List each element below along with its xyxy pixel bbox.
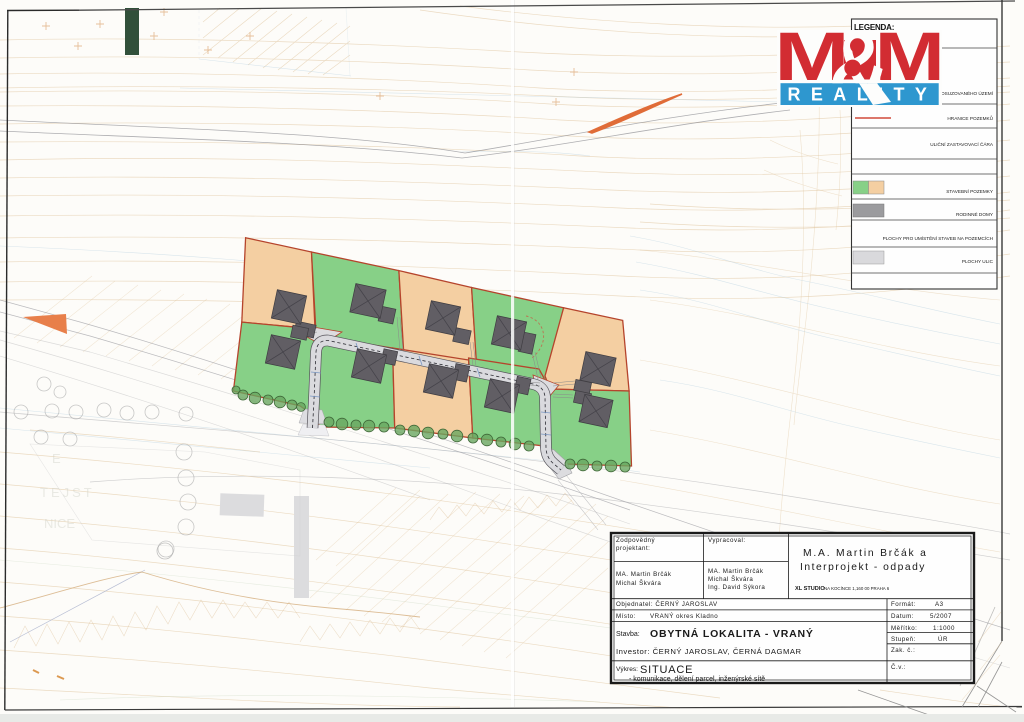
svg-text:ÚR: ÚR <box>938 636 948 643</box>
svg-text:1:1000: 1:1000 <box>933 625 955 632</box>
svg-text:projektant:: projektant: <box>616 545 650 552</box>
svg-text:Místo:: Místo: <box>616 613 636 620</box>
svg-text:5/2007: 5/2007 <box>930 613 952 620</box>
svg-text:ULIČNÍ ZASTAVOVACÍ ČÁRA: ULIČNÍ ZASTAVOVACÍ ČÁRA <box>930 141 994 147</box>
svg-text:A3: A3 <box>935 601 944 608</box>
svg-text:Měřítko:: Měřítko: <box>891 625 917 632</box>
svg-text:Zak. č.:: Zak. č.: <box>891 647 915 654</box>
svg-text:Stupeň:: Stupeň: <box>891 636 916 643</box>
svg-text:NA KOCÍNCE 1,160 00 PRAHA 6: NA KOCÍNCE 1,160 00 PRAHA 6 <box>824 586 890 591</box>
svg-text:E: E <box>52 451 61 466</box>
svg-text:Č.v.:: Č.v.: <box>891 664 906 671</box>
svg-text:MA. Martin Brčák: MA. Martin Brčák <box>616 571 672 578</box>
svg-text:Michal Škvára: Michal Škvára <box>616 580 661 587</box>
svg-text:Objednatel: ČERNÝ JAROSLAV: Objednatel: ČERNÝ JAROSLAV <box>616 601 718 608</box>
svg-text:MA. Martin Brčák: MA. Martin Brčák <box>708 568 764 575</box>
svg-text:Interprojekt - odpady: Interprojekt - odpady <box>800 562 926 573</box>
svg-text:Michal Škvára: Michal Škvára <box>708 576 753 583</box>
svg-text:RODINNÉ DOMY: RODINNÉ DOMY <box>956 211 994 217</box>
svg-text:Ing. David Sýkora: Ing. David Sýkora <box>708 584 765 591</box>
svg-text:Datum:: Datum: <box>891 613 914 620</box>
svg-text:PLOCHY PRO UMÍSTĚNÍ STAVEB NA: PLOCHY PRO UMÍSTĚNÍ STAVEB NA POZEMCÍCH <box>883 234 993 241</box>
svg-text:TEJST: TEJST <box>40 485 95 500</box>
svg-text:OBYTNÁ LOKALITA - VRANÝ: OBYTNÁ LOKALITA - VRANÝ <box>650 627 814 640</box>
svg-text:STAVEBNÍ POZEMKY: STAVEBNÍ POZEMKY <box>946 188 994 194</box>
svg-text:HRANICE POZEMKŮ: HRANICE POZEMKŮ <box>947 115 993 121</box>
svg-text:- komunikace, dělení parcel, i: - komunikace, dělení parcel, inženýrské … <box>629 676 765 683</box>
svg-text:PLOCHY ULIC: PLOCHY ULIC <box>962 259 994 264</box>
svg-text:Zodpovědný: Zodpovědný <box>616 537 655 544</box>
svg-text:VRANÝ okres Kladno: VRANÝ okres Kladno <box>650 613 718 620</box>
svg-text:Investor: ČERNÝ JAROSLAV, ČERN: Investor: ČERNÝ JAROSLAV, ČERNÁ DAGMAR <box>616 647 802 656</box>
svg-text:Stavba:: Stavba: <box>616 631 640 638</box>
svg-text:NICE: NICE <box>44 516 75 531</box>
svg-text:Formát:: Formát: <box>891 601 916 608</box>
svg-text:Výkres:: Výkres: <box>616 666 638 673</box>
svg-text:SITUACE: SITUACE <box>640 664 693 676</box>
svg-text:XL STUDIO: XL STUDIO <box>795 586 825 592</box>
svg-text:Vypracoval:: Vypracoval: <box>708 537 746 544</box>
svg-text:M.A. Martin Brčák a: M.A. Martin Brčák a <box>803 548 928 559</box>
